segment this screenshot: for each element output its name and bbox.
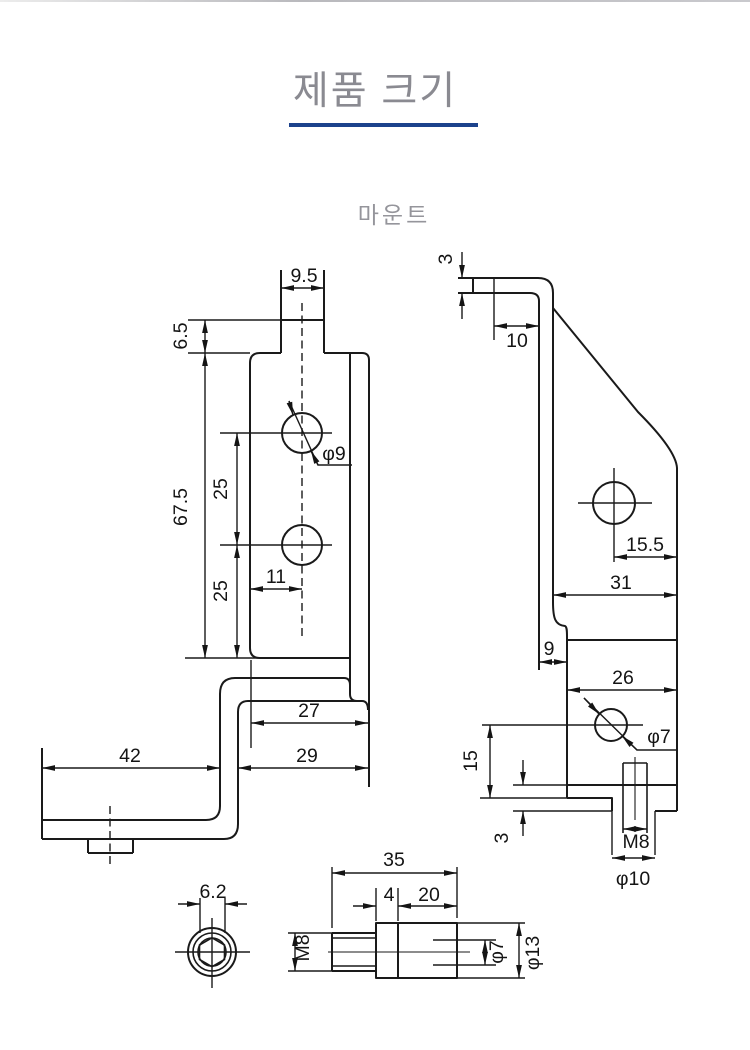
dim-boss-diameter: φ10 — [616, 868, 650, 890]
dim-pin-body-diameter: φ13 — [522, 936, 544, 970]
dim-tab-width: 9.5 — [290, 265, 317, 287]
dim-hole-diameter-front: φ9 — [322, 443, 346, 465]
technical-drawing: 9.5 6.5 67.5 25 25 11 φ9 27 29 42 — [0, 0, 750, 1050]
dim-tab-height: 6.5 — [170, 322, 192, 349]
dim-pin-thread: M8 — [292, 934, 314, 961]
dim-hole-height: 15 — [460, 750, 482, 772]
dim-pin-length: 35 — [383, 849, 405, 871]
dim-hole-offset-x: 11 — [266, 566, 286, 588]
dim-pin-body: 20 — [418, 884, 440, 906]
dim-lower-depth: 26 — [612, 667, 634, 689]
hex-end-view: 6.2 — [175, 881, 250, 988]
dim-total-height: 67.5 — [170, 488, 192, 526]
dim-lip-thickness: 3 — [491, 833, 513, 844]
dim-pin-hole-diameter: φ7 — [486, 940, 508, 964]
dim-thread-size-side: M8 — [622, 831, 649, 853]
dim-hole-pitch-upper: 25 — [210, 478, 232, 500]
dim-upper-depth: 31 — [610, 572, 632, 594]
dim-leg-length: 42 — [119, 745, 141, 767]
dim-lower-width: 29 — [296, 745, 318, 767]
dim-pin-collar: 4 — [384, 884, 395, 906]
pin-view: 35 4 20 M8 φ7 φ13 — [288, 849, 544, 978]
dim-hole-pitch-lower: 25 — [210, 580, 232, 602]
dim-flange-length: 10 — [506, 330, 528, 352]
dim-upper-width: 27 — [298, 700, 320, 722]
dim-flange-thickness: 3 — [435, 254, 457, 265]
dim-hole-diameter-side: φ7 — [647, 726, 671, 748]
dim-foot-width: 9 — [544, 638, 555, 660]
side-view: 3 10 15.5 31 9 26 φ7 15 3 M8 φ10 — [435, 252, 677, 890]
front-view: 9.5 6.5 67.5 25 25 11 φ9 27 29 42 — [42, 265, 369, 868]
dim-socket-size: 6.2 — [199, 881, 226, 903]
dim-hole-offset-side: 15.5 — [626, 534, 664, 556]
